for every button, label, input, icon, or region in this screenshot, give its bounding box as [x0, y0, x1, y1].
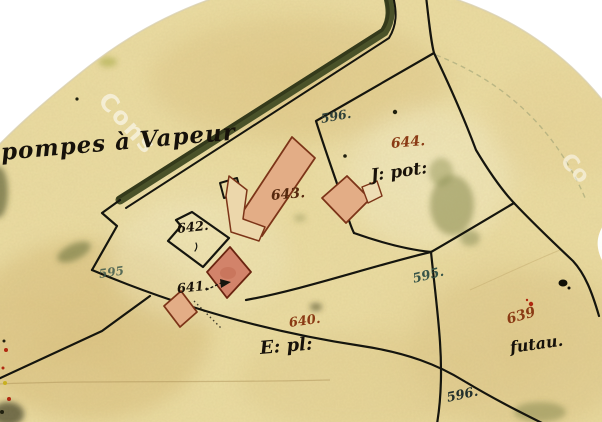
label-parcel-642: 642.: [176, 220, 209, 236]
label-parcel-644: 644.: [390, 134, 425, 151]
label-parcel-641: 641.: [176, 280, 209, 296]
label-parcel-643: 643.: [270, 186, 305, 203]
map-drawing: [0, 0, 602, 422]
cadastral-map-canvas: Cons Co pompes à Vapeur 596. 644. J: pot…: [0, 0, 602, 422]
label-terrain-e-pl: E: pl:: [259, 335, 313, 358]
label-parcel-595-west: 595: [98, 265, 124, 280]
